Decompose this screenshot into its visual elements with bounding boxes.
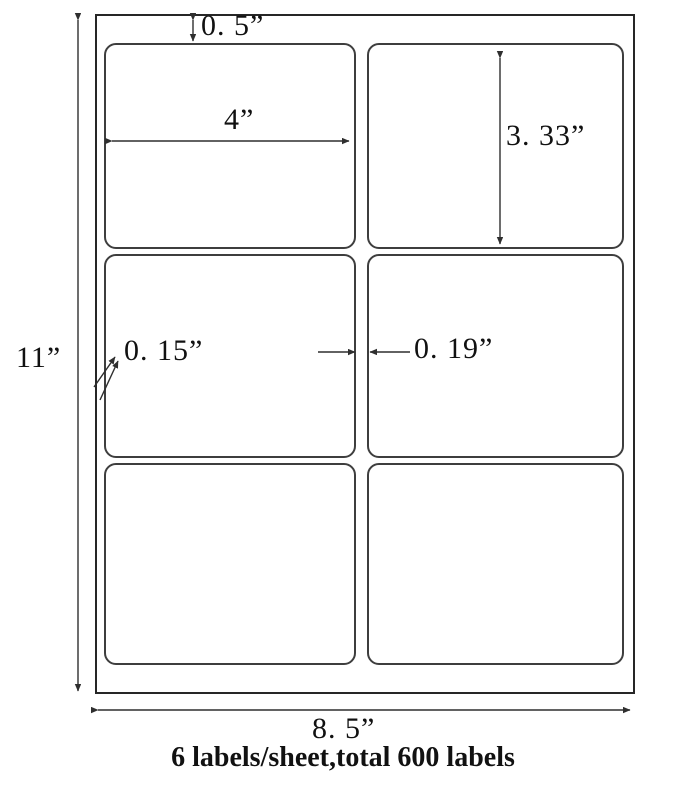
dim-side-margin-label: 0. 15” bbox=[124, 334, 203, 368]
label-cell bbox=[367, 463, 624, 665]
label-cell bbox=[367, 43, 624, 249]
label-cell bbox=[367, 254, 624, 458]
dim-label-width-label: 4” bbox=[224, 103, 254, 137]
label-cell bbox=[104, 463, 356, 665]
dim-top-margin-label: 0. 5” bbox=[201, 9, 264, 43]
dim-sheet-height-label: 11” bbox=[16, 341, 61, 375]
caption: 6 labels/sheet,total 600 labels bbox=[0, 741, 686, 775]
label-cell bbox=[104, 43, 356, 249]
dim-column-gap-label: 0. 19” bbox=[414, 332, 493, 366]
diagram-canvas: 0. 5” 4” 3. 33” 0. 15” 0. 19” 11” 8. 5” … bbox=[0, 0, 686, 787]
dim-label-height-label: 3. 33” bbox=[506, 119, 585, 153]
